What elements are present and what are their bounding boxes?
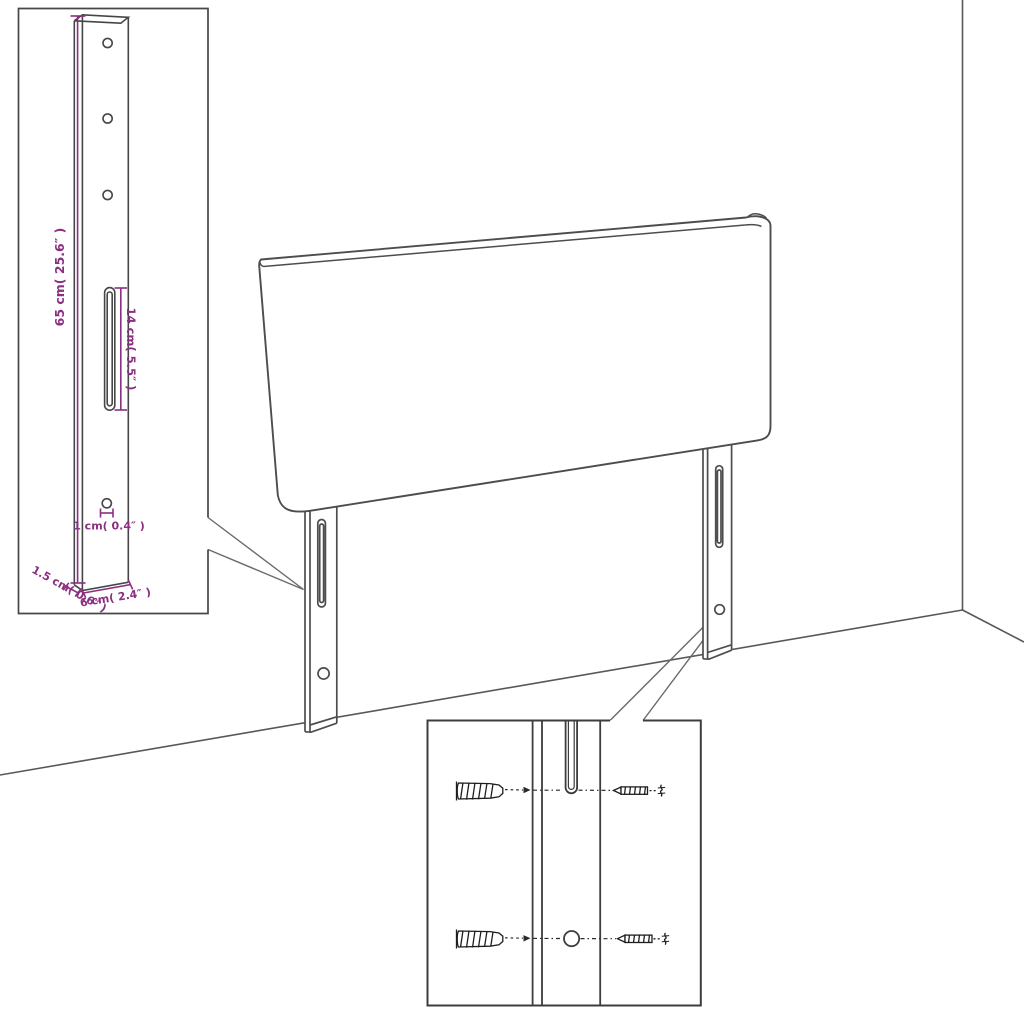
diagram-canvas: 65 cm( 25.6″ ) 14 cm( 5.5″ ) 1 cm( 0.4″ … [0,0,1024,1024]
headboard-panel [259,214,770,512]
right-leg-hole [715,605,725,615]
bracket-hole-4 [102,499,111,508]
dim-thickness-label: 1.5 cm( 0.6″ ) [30,563,109,615]
dim-slot-label: 14 cm( 5.5″ ) [124,308,138,391]
left-leg [305,507,337,733]
hardware-inset-border [428,721,701,1006]
dim-hole-label: 1 cm( 0.4″ ) [73,520,145,533]
bracket-callout-wedge [208,518,304,590]
right-leg [703,444,732,659]
callout-line [208,518,304,590]
hardware-inset [428,721,701,1006]
bracket-hole-3 [103,190,112,199]
callout-line [208,550,304,590]
dim-height-label: 65 cm( 25.6″ ) [52,228,67,327]
headboard-diagram: 65 cm( 25.6″ ) 14 cm( 5.5″ ) 1 cm( 0.4″ … [0,0,1024,1024]
floor-wall-line-right [963,610,1024,642]
left-leg-hole [318,668,329,679]
bracket-hole-1 [103,38,112,47]
bracket-inset: 65 cm( 25.6″ ) 14 cm( 5.5″ ) 1 cm( 0.4″ … [19,9,209,616]
bracket-slot-inner [107,292,112,406]
bracket-hole-2 [103,114,112,123]
bracket-slot [105,288,115,411]
